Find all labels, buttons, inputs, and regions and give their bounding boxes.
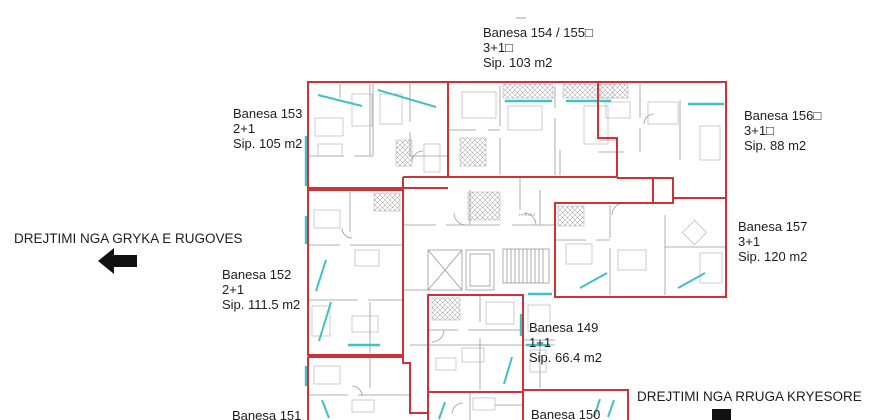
apartment-name: Banesa 149 xyxy=(529,320,602,335)
south-arrow-icon xyxy=(712,409,731,420)
apartment-name: Banesa 156□ xyxy=(744,108,821,123)
apartment-area: Sip. 103 m2 xyxy=(483,55,593,70)
direction-south-label: DREJTIMI NGA RRUGA KRYESORE xyxy=(637,389,862,404)
furniture xyxy=(312,92,722,412)
apartment-name: Banesa 157 xyxy=(738,219,807,234)
apartment-area: Sip. 66.4 m2 xyxy=(529,350,602,365)
apartment-area: Sip. 88 m2 xyxy=(744,138,821,153)
entrance-label: HYRJA 2 xyxy=(519,212,536,217)
apartment-label-152: Banesa 152 2+1 Sip. 111.5 m2 xyxy=(222,267,300,312)
apartment-label-150: Banesa 150 xyxy=(531,407,600,420)
apartment-name: Banesa 153 xyxy=(233,106,302,121)
west-arrow-icon xyxy=(98,248,137,274)
apartment-label-157: Banesa 157 3+1 Sip. 120 m2 xyxy=(738,219,807,264)
apartment-rooms: 3+1□ xyxy=(744,123,821,138)
elevator xyxy=(428,250,494,290)
apartment-rooms: 3+1 xyxy=(738,234,807,249)
apartment-name: Banesa 154 / 155□ xyxy=(483,25,593,40)
floor-plan-page: HYRJA 2 Banesa 153 2+1 Sip. 105 m2 Banes… xyxy=(0,0,870,420)
apartment-area: Sip. 111.5 m2 xyxy=(222,297,300,312)
direction-west-label: DREJTIMI NGA GRYKA E RUGOVES xyxy=(14,231,243,246)
apartment-rooms: 2+1 xyxy=(233,121,302,136)
apartment-name: Banesa 151 xyxy=(232,408,301,420)
apartment-area: Sip. 120 m2 xyxy=(738,249,807,264)
interior-walls xyxy=(308,18,726,420)
apartment-label-149: Banesa 149 1+1 Sip. 66.4 m2 xyxy=(529,320,602,365)
apartment-rooms: 1+1 xyxy=(529,335,602,350)
apartment-rooms: 3+1□ xyxy=(483,40,593,55)
apartment-label-151: Banesa 151 xyxy=(232,408,301,420)
apartment-label-156: Banesa 156□ 3+1□ Sip. 88 m2 xyxy=(744,108,821,153)
apartment-name: Banesa 150 xyxy=(531,407,600,420)
apartment-rooms: 2+1 xyxy=(222,282,300,297)
staircase xyxy=(503,249,549,283)
apartment-label-154-155: Banesa 154 / 155□ 3+1□ Sip. 103 m2 xyxy=(483,25,593,70)
apartment-label-153: Banesa 153 2+1 Sip. 105 m2 xyxy=(233,106,302,151)
apartment-area: Sip. 105 m2 xyxy=(233,136,302,151)
floor-plan-drawing: HYRJA 2 xyxy=(0,0,870,420)
apartment-outlines xyxy=(308,82,726,420)
outline-banesa-151 xyxy=(308,357,403,420)
apartment-name: Banesa 152 xyxy=(222,267,300,282)
